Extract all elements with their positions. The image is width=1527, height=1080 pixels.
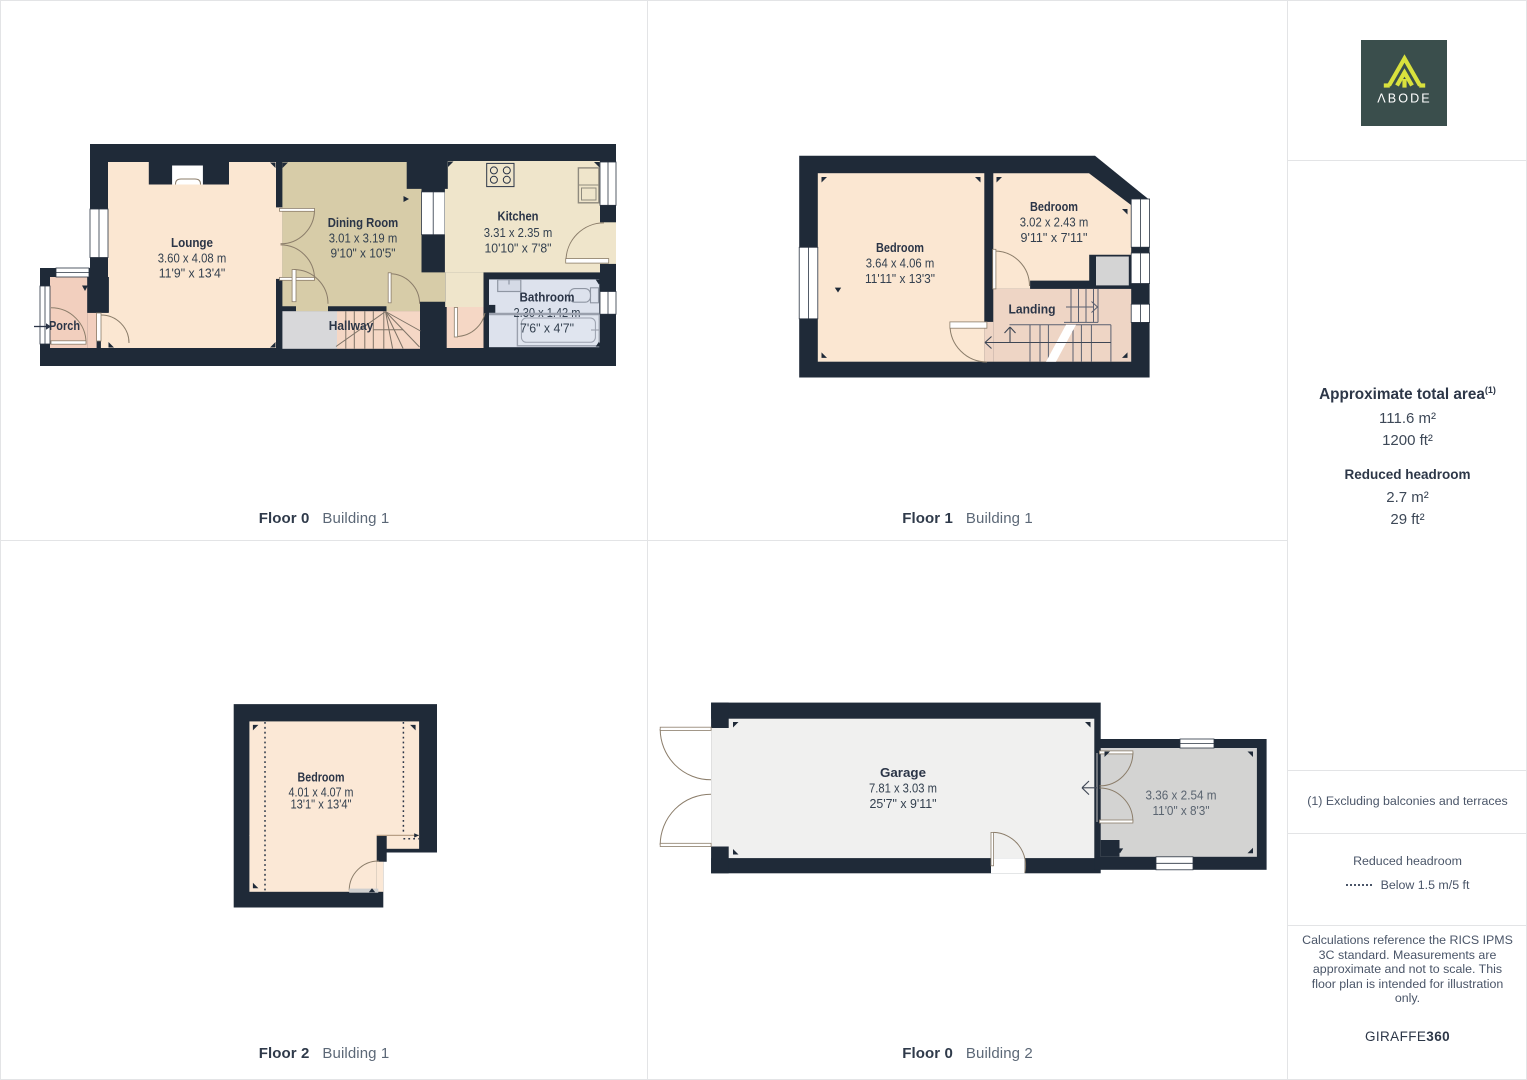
svg-text:3.60 x 4.08 m: 3.60 x 4.08 m xyxy=(158,251,227,266)
svg-text:3.02 x 2.43 m: 3.02 x 2.43 m xyxy=(1020,215,1089,230)
svg-text:Lounge: Lounge xyxy=(171,235,213,250)
svg-text:Kitchen: Kitchen xyxy=(498,209,539,224)
svg-text:25'7" x 9'11": 25'7" x 9'11" xyxy=(870,796,937,811)
svg-text:Landing: Landing xyxy=(1009,302,1056,317)
svg-text:13'1" x 13'4": 13'1" x 13'4" xyxy=(291,797,352,812)
svg-text:Hallway: Hallway xyxy=(329,318,374,333)
svg-text:Bathroom: Bathroom xyxy=(520,290,575,305)
svg-text:9'10" x 10'5": 9'10" x 10'5" xyxy=(331,246,396,261)
svg-text:11'9" x 13'4": 11'9" x 13'4" xyxy=(159,266,226,281)
svg-text:7'6" x 4'7": 7'6" x 4'7" xyxy=(520,321,574,336)
svg-text:3.31 x 2.35 m: 3.31 x 2.35 m xyxy=(484,225,553,240)
svg-text:3.36 x 2.54 m: 3.36 x 2.54 m xyxy=(1146,788,1217,803)
svg-text:11'0" x 8'3": 11'0" x 8'3" xyxy=(1153,803,1210,818)
svg-text:Bedroom: Bedroom xyxy=(298,770,345,785)
svg-text:Bedroom: Bedroom xyxy=(876,240,924,255)
svg-text:Garage: Garage xyxy=(880,765,926,780)
svg-text:11'11" x 13'3": 11'11" x 13'3" xyxy=(865,271,935,286)
svg-text:3.64 x 4.06 m: 3.64 x 4.06 m xyxy=(866,256,935,271)
svg-text:10'10" x 7'8": 10'10" x 7'8" xyxy=(485,241,552,256)
svg-text:7.81 x 3.03 m: 7.81 x 3.03 m xyxy=(869,781,937,796)
svg-text:ΛBODE: ΛBODE xyxy=(1377,92,1432,106)
svg-text:Bedroom: Bedroom xyxy=(1030,199,1078,214)
svg-text:Dining Room: Dining Room xyxy=(328,215,399,230)
svg-text:Porch: Porch xyxy=(49,318,80,333)
svg-text:2.30 x 1.42 m: 2.30 x 1.42 m xyxy=(514,305,581,320)
svg-text:9'11" x 7'11": 9'11" x 7'11" xyxy=(1021,230,1088,245)
svg-text:3.01 x 3.19 m: 3.01 x 3.19 m xyxy=(329,230,398,245)
